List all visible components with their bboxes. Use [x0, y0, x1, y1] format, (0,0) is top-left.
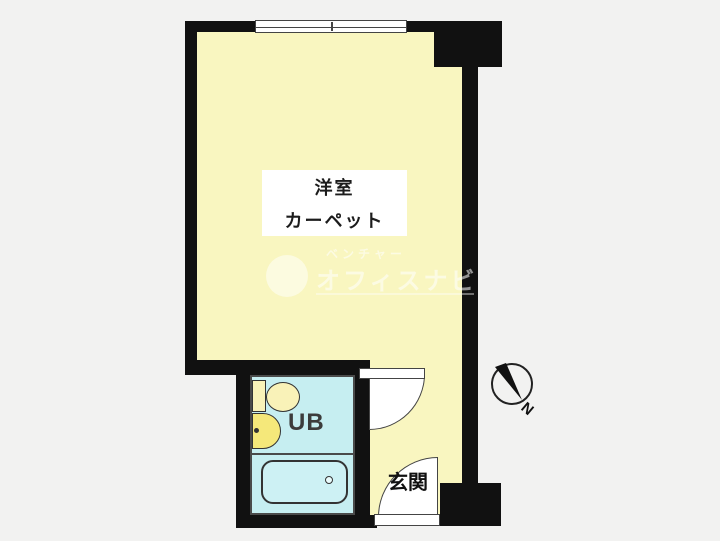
wall-pillar-top-right: [434, 21, 502, 67]
compass-needle-icon: [495, 363, 522, 400]
bathtub-drain-icon: [325, 476, 333, 484]
bathtub-icon: [261, 460, 348, 504]
wall-left: [185, 21, 197, 375]
bath-divider-line: [250, 453, 355, 455]
room-name-label: 洋室: [315, 174, 355, 200]
wall-bottom: [236, 515, 377, 528]
window-icon: [255, 20, 407, 33]
toilet-bowl-icon: [266, 382, 300, 412]
wall-room-bottom: [185, 360, 370, 375]
faucet-dot-icon: [254, 428, 259, 433]
watermark-line2: オフィスナビ: [316, 261, 478, 296]
unit-bath-label: UB: [288, 409, 325, 437]
watermark-line1: ベンチャー: [326, 245, 406, 262]
watermark: ベンチャー オフィスナビ: [264, 243, 484, 305]
wall-unit-bath-left: [236, 370, 250, 528]
room-finish-label: カーペット: [285, 207, 385, 233]
watermark-logo-icon: [266, 255, 308, 297]
floorplan-canvas: 洋室 カーペット ベンチャー オフィスナビ UB 玄関 N: [0, 0, 720, 541]
wall-block-bottom-right: [440, 483, 501, 526]
watermark-underline: [316, 293, 474, 295]
room-door-leaf-icon: [359, 368, 425, 379]
compass-icon: N: [485, 357, 557, 429]
window-center-tick: [331, 22, 333, 31]
wall-unit-bath-right: [355, 360, 370, 515]
room-label-box: 洋室 カーペット: [262, 170, 407, 236]
entrance-label: 玄関: [377, 466, 439, 495]
entrance-door-leaf-icon: [374, 514, 440, 526]
toilet-tank-icon: [252, 380, 266, 412]
